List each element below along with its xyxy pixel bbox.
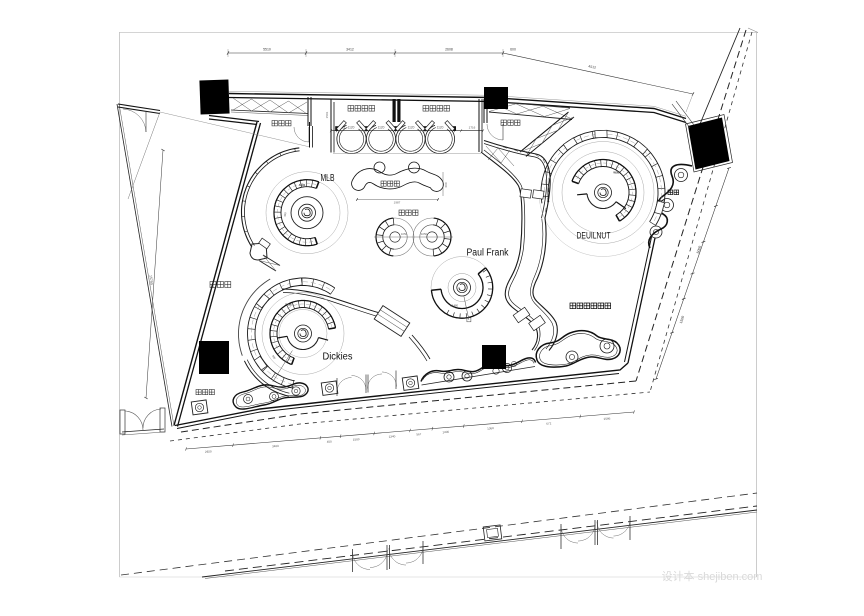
svg-text:600: 600 — [444, 182, 448, 187]
svg-text:3460: 3460 — [272, 444, 279, 449]
svg-text:600: 600 — [510, 48, 516, 52]
svg-text:设计本 shejiben.com: 设计本 shejiben.com — [662, 569, 763, 583]
svg-text:1120: 1120 — [437, 126, 444, 130]
svg-text:1340: 1340 — [388, 434, 395, 439]
svg-text:3412: 3412 — [346, 48, 354, 52]
svg-text:672: 672 — [546, 421, 552, 425]
svg-text:1120: 1120 — [348, 126, 355, 130]
svg-text:W587: W587 — [613, 171, 621, 175]
svg-text:15750: 15750 — [149, 275, 154, 285]
svg-text:1050: 1050 — [401, 232, 408, 236]
svg-text:1501: 1501 — [325, 111, 329, 118]
svg-text:Dickies: Dickies — [323, 351, 353, 363]
svg-text:450: 450 — [327, 439, 333, 443]
svg-text:DEUILNUT: DEUILNUT — [577, 231, 611, 242]
svg-text:2608: 2608 — [445, 48, 453, 52]
svg-text:1120: 1120 — [408, 126, 415, 130]
svg-text:W581: W581 — [285, 303, 293, 307]
svg-text:567: 567 — [416, 432, 422, 436]
svg-text:1716: 1716 — [469, 126, 476, 130]
svg-text:1120: 1120 — [378, 126, 385, 130]
svg-text:MLB: MLB — [321, 173, 335, 184]
svg-text:Paul Frank: Paul Frank — [467, 248, 510, 259]
svg-text:1050: 1050 — [421, 232, 428, 236]
svg-text:A181: A181 — [299, 183, 306, 187]
svg-text:5510: 5510 — [263, 48, 271, 52]
svg-text:1360: 1360 — [487, 426, 494, 431]
svg-text:1987: 1987 — [394, 201, 401, 205]
svg-text:2596: 2596 — [604, 416, 611, 421]
svg-text:1400: 1400 — [442, 430, 449, 435]
svg-text:2920: 2920 — [205, 449, 212, 454]
svg-text:1500: 1500 — [353, 437, 360, 442]
svg-text:R1480: R1480 — [450, 304, 459, 308]
